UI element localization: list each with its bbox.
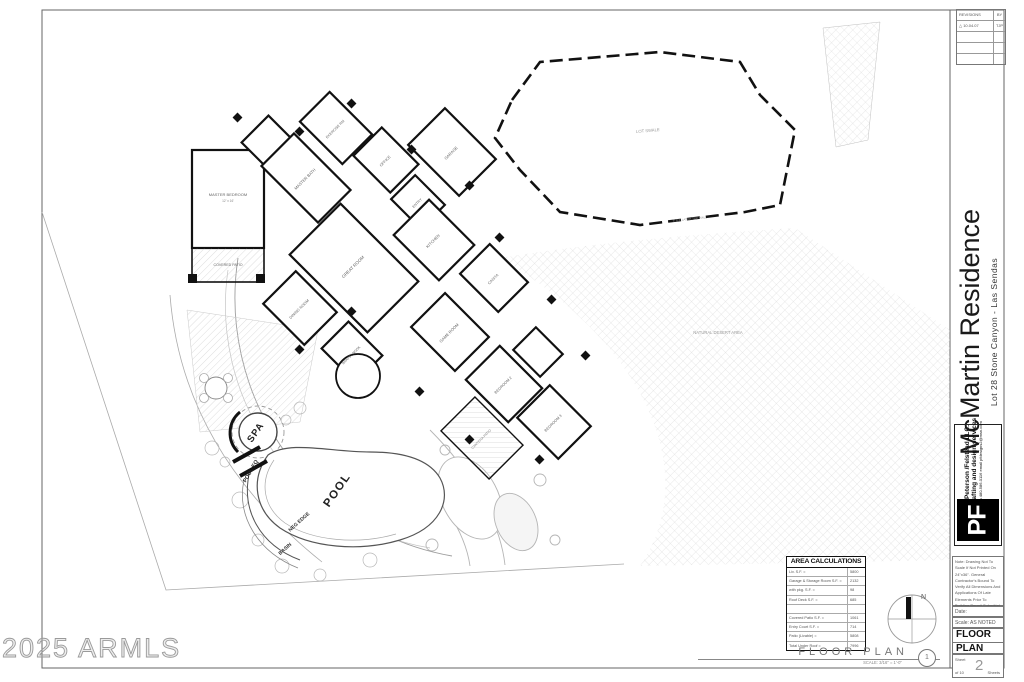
area-calc-row (787, 605, 865, 614)
drawing-scale: SCALE: 3/16" = 1'-0" (830, 660, 935, 665)
revisions-header: REVISIONS (957, 10, 994, 20)
plan-label: BASIN (278, 542, 294, 557)
drawing-title: FLOOR PLAN (798, 646, 908, 658)
area-calc-row: Entry Court S.F. =714 (787, 623, 865, 632)
pool (233, 447, 444, 568)
drawing-sheet: N MASTER BEDROOM12' x 16'COVERED PATIOMA… (0, 0, 1024, 682)
revision-by: TJP (994, 21, 1005, 31)
area-calc-row: Garage & Storage Room S.F. =2132 (787, 577, 865, 586)
date-row: Date: (952, 606, 1004, 617)
area-calc-row: Roof Deck S.F. =685 (787, 596, 865, 605)
revisions-by-header: BY (994, 10, 1005, 20)
scale-label: Scale: (955, 620, 969, 626)
sheet-number-box: Sheet 2 of 10 Sheets (952, 654, 1004, 678)
armls-watermark: 2025 ARMLS (2, 633, 181, 664)
north-label: N (921, 594, 926, 601)
floor-plan-drawing: N MASTER BEDROOM12' x 16'COVERED PATIOMA… (0, 0, 1024, 682)
plan-label: 12' x 16' (222, 199, 234, 203)
scale-value: AS NOTED (970, 620, 996, 626)
area-calc-row: Covered Patio S.F. =1061 (787, 614, 865, 623)
area-calculations-title: AREA CALCULATIONS (787, 557, 865, 568)
sheets-label: Sheets (988, 670, 1000, 675)
area-calculations-table: AREA CALCULATIONS Liv. S.F. =5800Garage … (786, 556, 866, 651)
north-arrow: N (888, 594, 936, 643)
revision-entry: △ 10.04.07 (957, 21, 994, 31)
sheet-name-line1: FLOOR (953, 629, 1003, 643)
plan-label: COVERED PATIO (213, 263, 242, 267)
date-label: Date: (955, 609, 967, 615)
plan-label: MASTER BEDROOM (209, 192, 247, 197)
lot-swale-outline (495, 52, 795, 225)
title-block-note: Note: Drawing Not To Scale If Not Printe… (952, 556, 1004, 606)
sheet-of: of 10 (955, 670, 964, 675)
plan-label: NATURAL DESERT AREA (693, 330, 743, 335)
natural-desert-area (500, 228, 950, 566)
sheet-number: 2 (975, 657, 983, 674)
firm-logo: PF (957, 499, 999, 541)
scale-row: Scale: AS NOTED (952, 617, 1004, 628)
area-calc-row: with pkg. S.F. =98 (787, 586, 865, 595)
sheet-label: Sheet (955, 657, 965, 662)
revisions-table: REVISIONS BY △ 10.04.07 TJP (956, 9, 1006, 65)
area-calc-row: Liv. S.F. =5800 (787, 568, 865, 577)
desert-patch-top-right (823, 22, 880, 147)
sheet-name-box: FLOOR PLAN (952, 628, 1004, 654)
drawing-title-bar: FLOOR PLAN 1 (698, 641, 940, 660)
firm-logo-text: PF (963, 505, 992, 535)
